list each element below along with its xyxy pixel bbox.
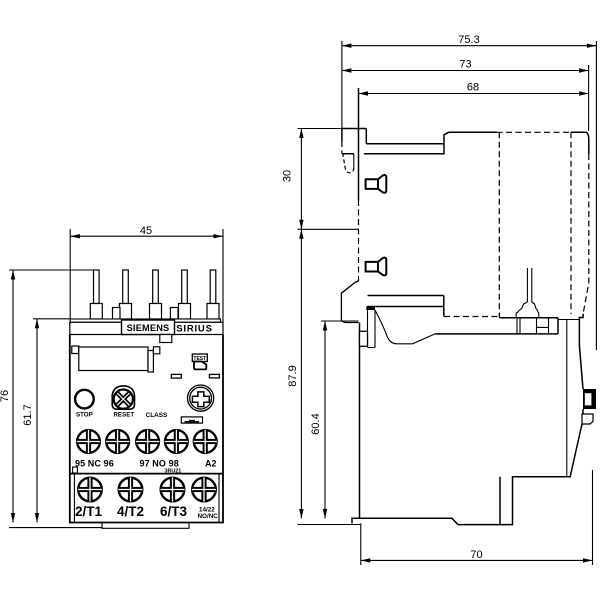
svg-text:95 NC 96: 95 NC 96 <box>75 459 114 469</box>
svg-text:SIRIUS: SIRIUS <box>176 324 212 335</box>
svg-text:87.9: 87.9 <box>287 365 299 386</box>
svg-text:CLASS: CLASS <box>146 412 168 419</box>
svg-text:45: 45 <box>140 225 152 237</box>
svg-text:4/T2: 4/T2 <box>117 504 144 519</box>
svg-text:STOP: STOP <box>76 412 93 419</box>
svg-text:SIEMENS: SIEMENS <box>127 323 170 333</box>
svg-text:75.3: 75.3 <box>458 34 479 46</box>
svg-text:76: 76 <box>0 390 11 402</box>
svg-text:60.4: 60.4 <box>310 413 322 434</box>
svg-text:30: 30 <box>282 170 294 182</box>
svg-text:A2: A2 <box>205 459 217 469</box>
svg-text:2/T1: 2/T1 <box>75 504 103 519</box>
svg-text:97 NO 98: 97 NO 98 <box>140 459 179 469</box>
svg-text:73: 73 <box>459 59 471 71</box>
svg-text:6/T3: 6/T3 <box>160 504 188 519</box>
svg-text:61.7: 61.7 <box>22 404 34 425</box>
svg-text:68: 68 <box>467 82 479 94</box>
svg-text:RESET: RESET <box>113 412 134 419</box>
svg-text:NO/NC: NO/NC <box>198 513 219 520</box>
svg-text:70: 70 <box>470 549 482 561</box>
